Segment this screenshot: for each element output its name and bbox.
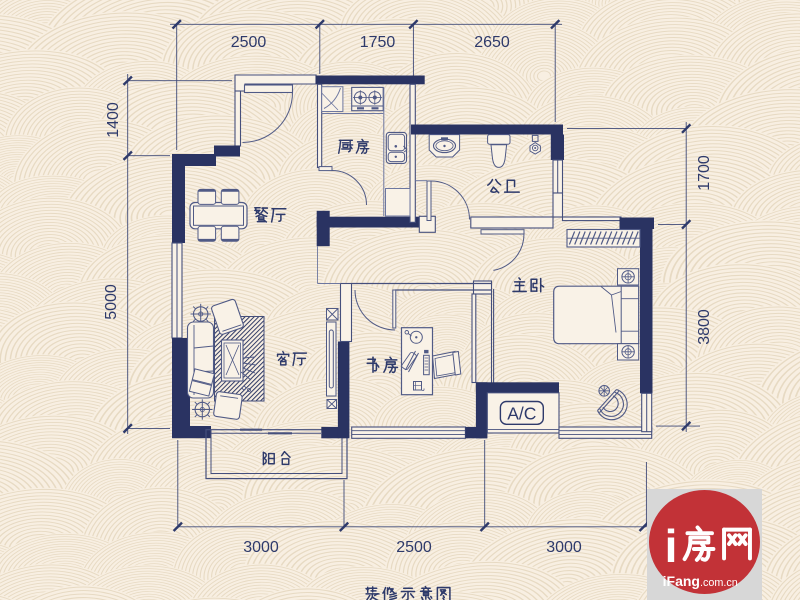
- svg-text:iFang: iFang: [663, 573, 700, 589]
- svg-text:5000: 5000: [103, 284, 120, 320]
- svg-text:A/C: A/C: [507, 404, 536, 424]
- svg-text:2500: 2500: [396, 539, 432, 556]
- svg-text:2650: 2650: [474, 34, 510, 51]
- svg-text:2500: 2500: [231, 34, 267, 51]
- svg-text:3800: 3800: [696, 309, 713, 345]
- svg-text:1750: 1750: [360, 34, 396, 51]
- svg-text:1700: 1700: [696, 155, 713, 191]
- svg-text:.com.cn: .com.cn: [700, 577, 738, 589]
- svg-text:1400: 1400: [105, 102, 122, 138]
- svg-text:i: i: [665, 520, 678, 572]
- svg-text:3000: 3000: [243, 539, 279, 556]
- svg-text:3000: 3000: [546, 539, 582, 556]
